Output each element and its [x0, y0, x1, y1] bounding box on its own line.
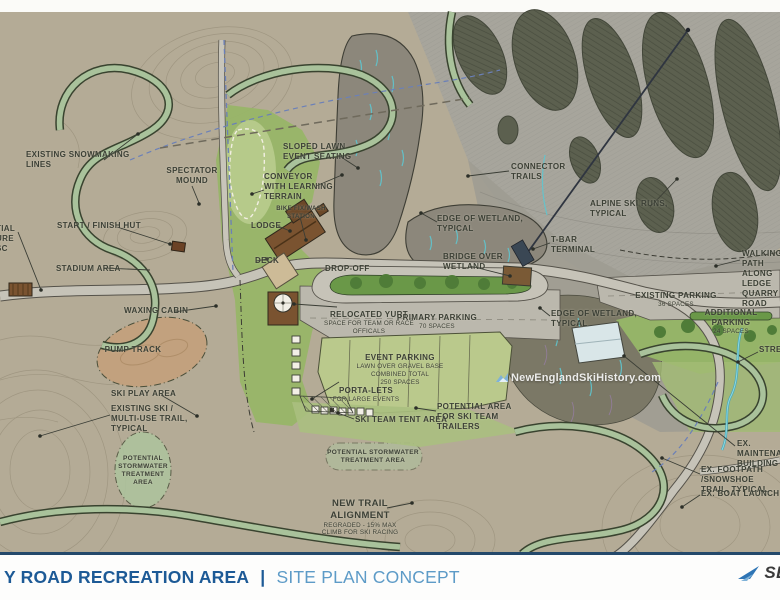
label-additional-parking-main: ADDITIONAL PARKING	[705, 308, 758, 327]
label-ski-team-trailers: POTENTIAL AREA FOR SKI TEAM TRAILERS	[437, 402, 512, 432]
se-group-logo-icon	[737, 565, 761, 582]
label-sloped-lawn: SLOPED LAWN EVENT SEATING	[283, 142, 351, 162]
label-edge-wetland-south: EDGE OF WETLAND, TYPICAL	[551, 309, 637, 329]
road-cabin-icon	[9, 283, 32, 296]
label-new-trail-main: NEW TRAIL ALIGNMENT	[330, 498, 390, 521]
label-stormwater-west: POTENTIAL STORMWATER TREATMENT AREA	[118, 455, 168, 488]
site-plan-page: EXISTING SNOWMAKING LINES SPECTATOR MOUN…	[0, 0, 780, 600]
start-finish-hut-icon	[171, 241, 185, 252]
label-stormwater-center: POTENTIAL STORMWATER TREATMENT AREA	[327, 449, 419, 465]
plan-title-primary: Y ROAD RECREATION AREA	[4, 567, 249, 587]
label-stadium-area: STADIUM AREA	[56, 264, 121, 274]
label-snowmaking: EXISTING SNOWMAKING LINES	[26, 150, 130, 170]
label-lodge: LODGE	[251, 221, 281, 231]
se-group-logo: SE	[737, 563, 780, 583]
label-pump-track: PUMP TRACK	[105, 345, 162, 355]
label-ex-boat-launch: EX. BOAT LAUNCH	[701, 489, 779, 499]
label-deck: DECK	[255, 256, 279, 266]
label-connector-trails: CONNECTOR TRAILS	[511, 162, 566, 182]
label-primary-parking-sub: 70 SPACES	[397, 323, 477, 331]
label-start-finish-hut: START / FINISH HUT	[57, 221, 141, 231]
watermark-icon	[496, 373, 508, 383]
label-additional-parking: ADDITIONAL PARKING 24 SPACES	[705, 298, 758, 346]
label-ski-play-area: SKI PLAY AREA	[111, 389, 176, 399]
title-separator: |	[260, 567, 265, 587]
label-new-trail-sub: REGRADED - 15% MAX CLIMB FOR SKI RACING	[322, 522, 398, 538]
label-primary-parking-main: PRIMARY PARKING	[397, 313, 477, 322]
label-event-parking-main: EVENT PARKING	[365, 353, 435, 362]
label-new-trail: NEW TRAIL ALIGNMENT REGRADED - 15% MAX C…	[322, 486, 398, 549]
title-bar: Y ROAD RECREATION AREA | SITE PLAN CONCE…	[0, 552, 780, 600]
label-porta-lets: PORTA-LETS FOR LARGE EVENTS	[333, 376, 400, 414]
label-porta-lets-sub: FOR LARGE EVENTS	[333, 396, 400, 404]
plan-title-secondary: SITE PLAN CONCEPT	[276, 567, 459, 587]
label-additional-parking-sub: 24 SPACES	[705, 328, 758, 336]
label-alpine-runs: ALPINE SKI RUNS, TYPICAL	[590, 199, 668, 219]
label-porta-lets-main: PORTA-LETS	[339, 386, 393, 395]
label-existing-ski-trail: EXISTING SKI / MULTI-USE TRAIL, TYPICAL	[111, 404, 188, 434]
plan-title: Y ROAD RECREATION AREA | SITE PLAN CONCE…	[4, 567, 460, 588]
label-edge-wetland-north: EDGE OF WETLAND, TYPICAL	[437, 214, 523, 234]
watermark-text: NewEnglandSkiHistory.com	[511, 372, 661, 384]
label-tbar-terminal: T-BAR TERMINAL	[551, 235, 595, 255]
watermark: NewEnglandSkiHistory.com	[496, 372, 661, 384]
label-primary-parking: PRIMARY PARKING 70 SPACES	[397, 303, 477, 341]
label-conveyor: CONVEYOR WITH LEARNING TERRAIN	[264, 172, 333, 202]
label-waxing-cabin: WAXING CABIN	[124, 306, 188, 316]
se-group-logo-text: SE	[764, 563, 780, 583]
label-bike-station: BIKE FIX/WASH STATION	[276, 206, 326, 221]
label-bridge-over-wetland: BRIDGE OVER WETLAND	[443, 252, 503, 272]
label-left-edge-partial: TIAL URE SC	[0, 224, 15, 254]
label-ski-team-tent: SKI TEAM TENT AREA	[355, 415, 447, 425]
label-drop-off: DROP-OFF	[325, 264, 370, 274]
label-spectator-mound: SPECTATOR MOUND	[166, 166, 217, 186]
wetland-bridge	[502, 266, 531, 286]
label-stream: STREAM	[759, 345, 780, 355]
